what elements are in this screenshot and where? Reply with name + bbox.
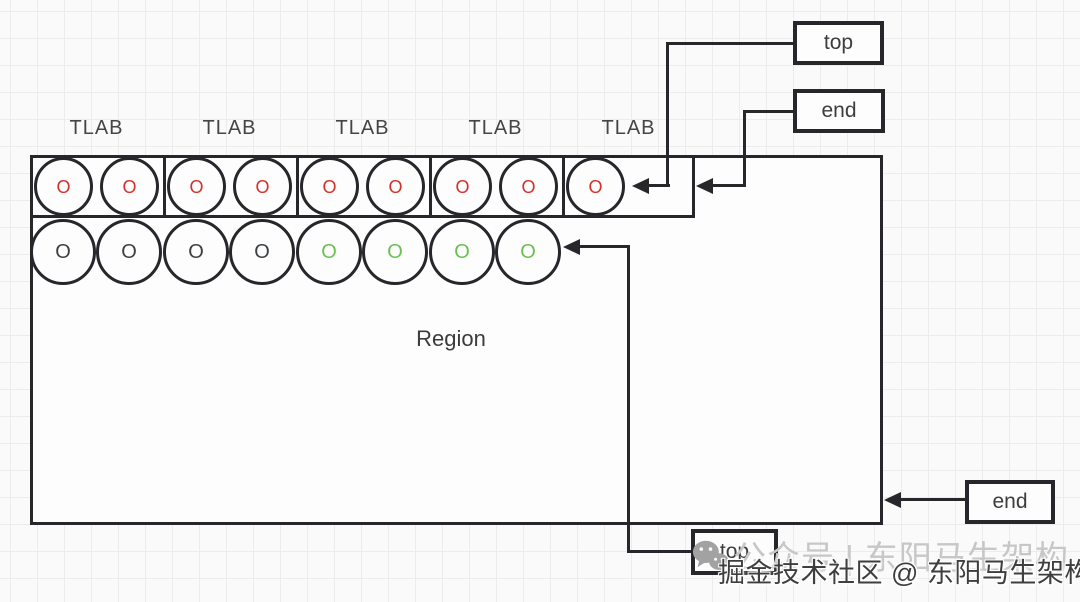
region-object-circle: O <box>229 219 295 285</box>
region-object-circle: O <box>96 219 162 285</box>
top-region-connector-line <box>627 550 691 553</box>
top-tlab-connector-line <box>646 184 670 187</box>
top-tlab-connector-line <box>666 42 669 187</box>
tlab-object-circle: O <box>366 157 425 216</box>
object-label: O <box>454 242 470 262</box>
tlab-divider <box>429 158 432 215</box>
object-label: O <box>321 242 337 262</box>
tlab-divider <box>296 158 299 215</box>
tlab-object-circle: O <box>566 157 625 216</box>
region-object-circle: O <box>362 219 428 285</box>
watermark-gray-text: 公众号 | 东阳马生架构 <box>733 531 1069 579</box>
tlab-label: TLAB <box>30 117 163 140</box>
object-label: O <box>121 242 137 262</box>
end-tlab-connector-line <box>743 110 793 113</box>
top-region-connector-line <box>627 245 630 553</box>
region-object-circle: O <box>429 219 495 285</box>
end-tlab-connector-line <box>743 110 746 187</box>
tlab-divider <box>562 158 565 215</box>
object-label: O <box>189 178 203 196</box>
top-tlab-connector-line <box>666 42 793 45</box>
end-pointer-box-region: end <box>965 480 1055 524</box>
region-object-circle: O <box>30 219 96 285</box>
tlab-label: TLAB <box>163 117 296 140</box>
object-label: O <box>520 242 536 262</box>
end-tlab-arrowhead-icon <box>696 178 713 194</box>
object-label: O <box>122 178 136 196</box>
object-label: O <box>254 242 270 262</box>
region-label: Region <box>391 326 511 352</box>
tlab-object-circle: O <box>233 157 292 216</box>
top-tlab-arrowhead-icon <box>632 178 649 194</box>
object-label: O <box>455 178 469 196</box>
tlab-label: TLAB <box>562 117 695 140</box>
object-label: O <box>55 242 71 262</box>
tlab-divider <box>163 158 166 215</box>
tlab-object-circle: O <box>167 157 226 216</box>
tlab-object-circle: O <box>34 157 93 216</box>
tlab-object-circle: O <box>433 157 492 216</box>
object-label: O <box>188 242 204 262</box>
object-label: O <box>56 178 70 196</box>
end-region-connector-line <box>899 498 965 501</box>
region-object-circle: O <box>163 219 229 285</box>
tlab-object-circle: O <box>300 157 359 216</box>
wechat-icon <box>692 539 729 573</box>
end-tlab-connector-line <box>710 184 746 187</box>
object-label: O <box>255 178 269 196</box>
top-region-connector-line <box>578 245 630 248</box>
top-region-arrowhead-icon <box>563 239 580 255</box>
tlab-object-circle: O <box>100 157 159 216</box>
object-label: O <box>387 242 403 262</box>
tlab-label: TLAB <box>296 117 429 140</box>
object-label: O <box>588 178 602 196</box>
object-label: O <box>322 178 336 196</box>
object-label: O <box>388 178 402 196</box>
object-label: O <box>521 178 535 196</box>
end-region-arrowhead-icon <box>884 492 901 508</box>
end-pointer-box-tlab: end <box>793 89 885 133</box>
region-object-circle: O <box>296 219 362 285</box>
tlab-label: TLAB <box>429 117 562 140</box>
region-object-circle: O <box>495 219 561 285</box>
tlab-object-circle: O <box>499 157 558 216</box>
top-pointer-box-tlab: top <box>793 21 884 65</box>
